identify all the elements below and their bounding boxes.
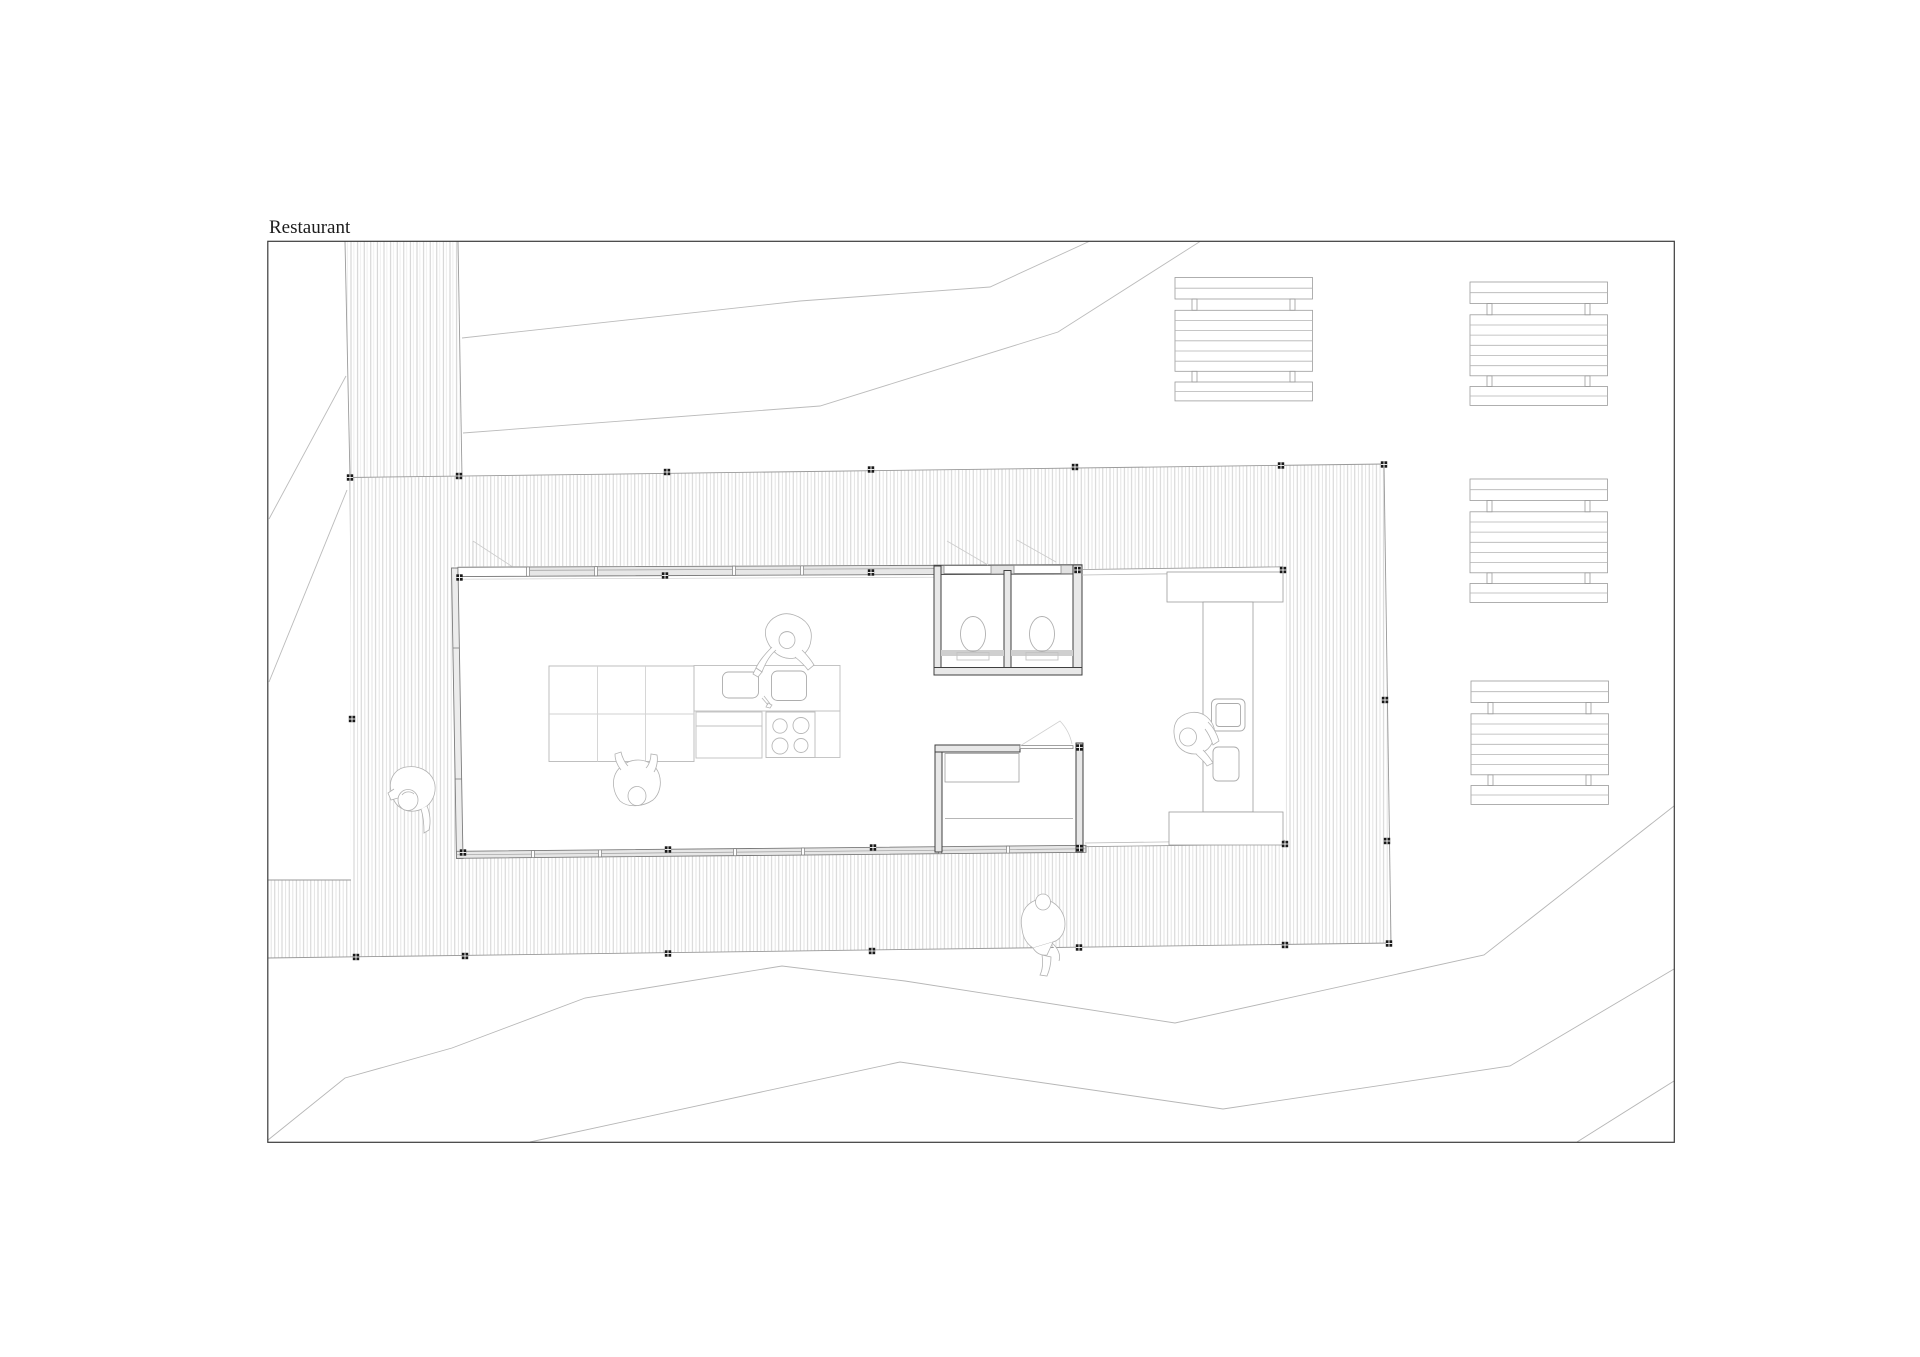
svg-text:Restaurant: Restaurant — [269, 217, 351, 238]
